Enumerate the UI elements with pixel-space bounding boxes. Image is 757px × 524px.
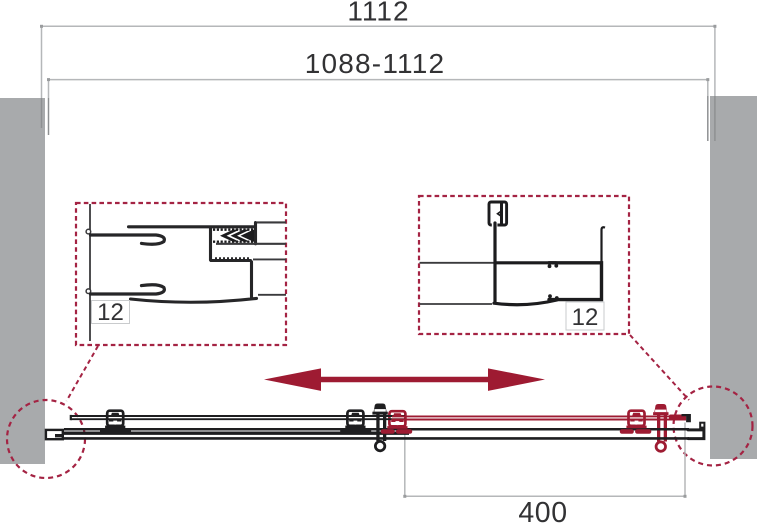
svg-text:12: 12 <box>572 304 599 331</box>
svg-text:1088-1112: 1088-1112 <box>305 48 446 79</box>
svg-text:12: 12 <box>97 299 124 326</box>
svg-text:400: 400 <box>518 497 567 524</box>
svg-text:1112: 1112 <box>347 0 409 27</box>
